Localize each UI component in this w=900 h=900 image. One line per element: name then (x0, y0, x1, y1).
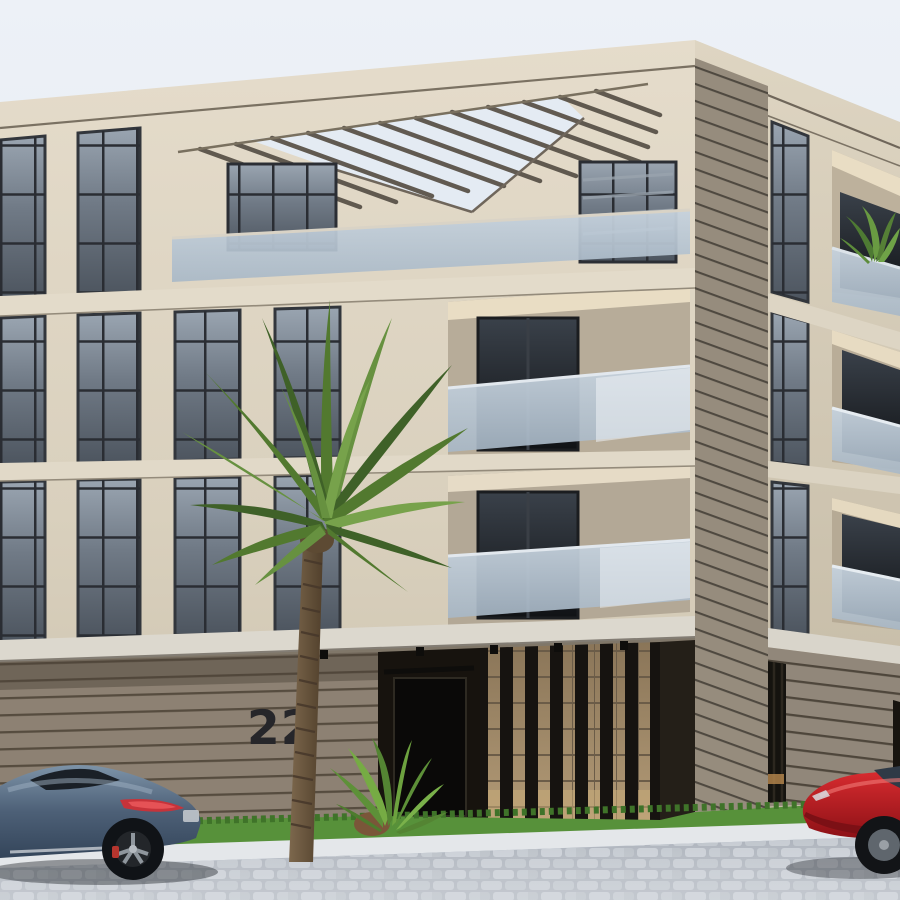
entrance (378, 648, 480, 818)
corner-slat-strip (695, 58, 768, 812)
wheel-hub (129, 845, 137, 853)
building-right-face (695, 40, 900, 812)
entrance-slat-screen (480, 642, 660, 822)
front-balcony-floor2 (448, 284, 690, 468)
front-balcony-floor1 (448, 462, 690, 628)
architectural-render-scene: 22 (0, 0, 900, 900)
right-face-windows (772, 122, 808, 635)
corner-shadow (660, 640, 695, 822)
brake-caliper (112, 846, 119, 858)
rear-plate (183, 810, 199, 822)
wheel-hub (879, 840, 889, 850)
